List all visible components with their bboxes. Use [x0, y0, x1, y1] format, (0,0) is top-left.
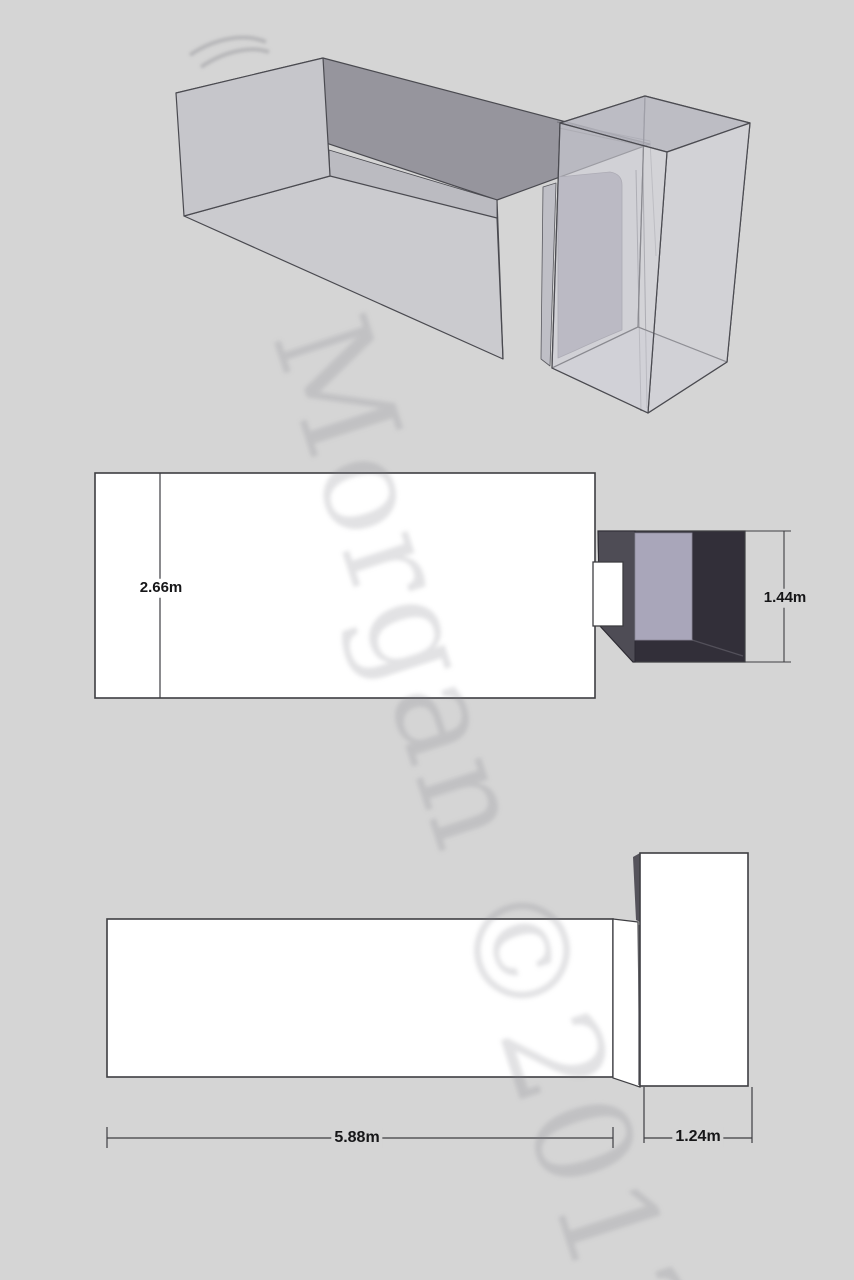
side-body-dim-label: 5.88m: [331, 1128, 382, 1148]
plan-connector-rect: [593, 562, 623, 626]
side-drawbar: [613, 919, 640, 1087]
small-box-front-left-face: [552, 123, 667, 413]
model-views-drawing: [0, 0, 854, 1280]
side-cab-rect: [640, 853, 748, 1086]
plan-width-dim-label: 2.66m: [137, 579, 186, 598]
diagram-page: 2.66m 1.44m 5.88m 1.24m Morgan ©2013: [0, 0, 854, 1280]
side-body-rect: [107, 919, 613, 1077]
plan-cab-door-panel: [635, 533, 692, 640]
plan-view: [95, 473, 791, 698]
watermark-flourish: [190, 38, 269, 67]
side-view: [107, 853, 752, 1148]
perspective-view: [176, 58, 750, 413]
side-cab-dim-label: 1.24m: [672, 1127, 723, 1147]
plan-cab-dim-label: 1.44m: [761, 589, 810, 608]
side-cab-shadow-wedge: [633, 853, 640, 922]
